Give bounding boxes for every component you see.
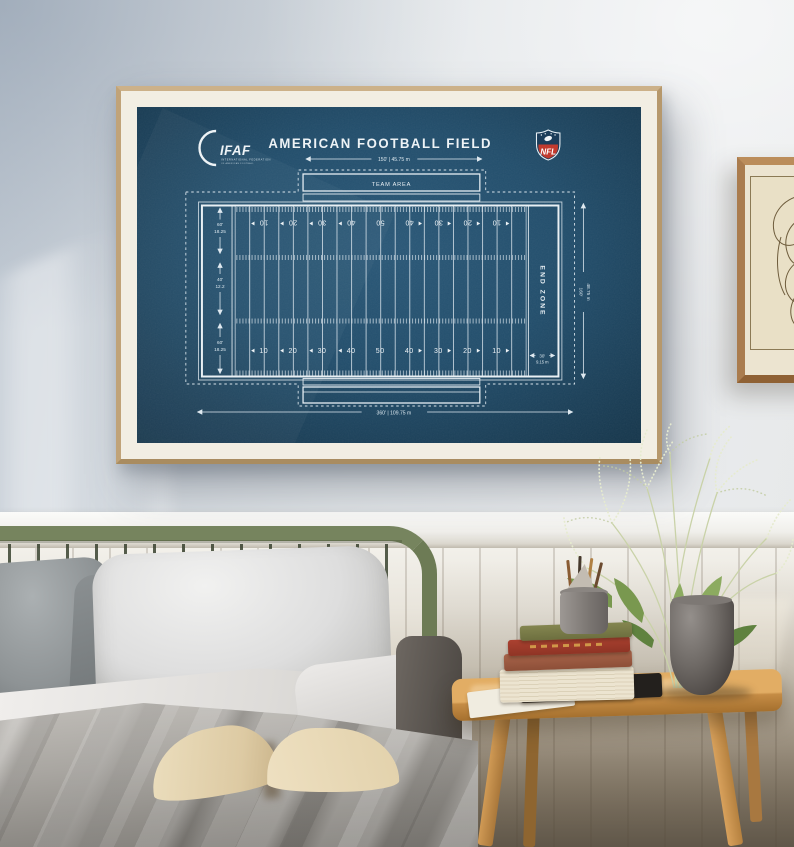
yard-number: 10 <box>259 219 268 227</box>
yard-number: 50 <box>376 219 385 227</box>
ifaf-subtext-2: OF AMERICAN FOOTBALL <box>221 162 255 165</box>
side-dim-bottom-m: 18.25 <box>214 347 226 353</box>
end-zone-label: END ZONE <box>538 265 545 316</box>
yard-number: 20 <box>463 347 472 355</box>
poster-frame: AMERICAN FOOTBALL FIELD IFAF INTERNATION… <box>116 86 662 464</box>
plant-pot-rim <box>672 595 732 605</box>
yard-numbers-top-row: 10 20 30 40 50 40 30 20 10 <box>251 219 509 227</box>
bottom-dimension-label: 360' | 109.75 m <box>377 410 412 416</box>
side-dim-top-m: 18.25 <box>214 229 226 235</box>
yard-number: 40 <box>347 219 356 227</box>
team-area-label: TEAM AREA <box>372 182 411 188</box>
yard-number: 20 <box>463 219 472 227</box>
yard-number: 30 <box>318 347 327 355</box>
blueprint-poster: AMERICAN FOOTBALL FIELD IFAF INTERNATION… <box>137 107 641 443</box>
sketch-lines <box>751 177 794 349</box>
yard-number: 10 <box>492 347 501 355</box>
side-dim-top-ft: 60' <box>217 222 223 228</box>
end-zone-depth-ft: 30' <box>539 353 545 358</box>
pencil-cup <box>560 592 608 634</box>
side-dim-middle-ft: 40' <box>217 277 223 283</box>
plant-sprays-2 <box>567 434 767 523</box>
yard-number: 50 <box>376 347 385 355</box>
right-dimension-ft: 160' <box>577 288 583 297</box>
headboard-shadow <box>0 540 402 543</box>
side-dim-middle-m: 12.2 <box>215 284 224 290</box>
end-zone-depth-m: 9.15 m <box>536 359 549 364</box>
hash-marks-lower <box>235 319 526 324</box>
yard-numbers-bottom-row: 10 20 30 40 50 40 30 20 10 <box>251 347 509 355</box>
open-book <box>142 703 408 815</box>
sideline-ticks-bottom <box>235 371 526 376</box>
art-sketch <box>750 176 794 350</box>
yard-number: 20 <box>288 219 297 227</box>
hash-marks-upper <box>235 255 526 260</box>
yard-number: 40 <box>405 347 414 355</box>
yard-number: 20 <box>288 347 297 355</box>
yard-number: 40 <box>405 219 414 227</box>
yard-number: 10 <box>492 219 501 227</box>
top-dimension-label: 150' | 45.75 m <box>378 157 410 163</box>
yard-number: 10 <box>259 347 268 355</box>
sideline-ticks-top <box>235 207 526 212</box>
book-page-right <box>267 728 399 792</box>
ifaf-text: IFAF <box>220 143 251 158</box>
nfl-logo: NFL <box>536 130 559 160</box>
plant-pot <box>670 598 734 695</box>
side-dim-bottom-ft: 60' <box>217 340 223 346</box>
ifaf-subtext-1: INTERNATIONAL FEDERATION <box>221 157 271 161</box>
yard-number: 40 <box>347 347 356 355</box>
right-dimension-m: 48.75 m <box>585 283 591 300</box>
yard-number: 30 <box>318 219 327 227</box>
nfl-text: NFL <box>540 147 556 156</box>
book-cream <box>500 666 635 702</box>
poster-title: AMERICAN FOOTBALL FIELD <box>268 136 492 151</box>
yard-number: 30 <box>434 347 443 355</box>
book-page-left <box>144 718 282 807</box>
yard-number: 30 <box>434 219 443 227</box>
